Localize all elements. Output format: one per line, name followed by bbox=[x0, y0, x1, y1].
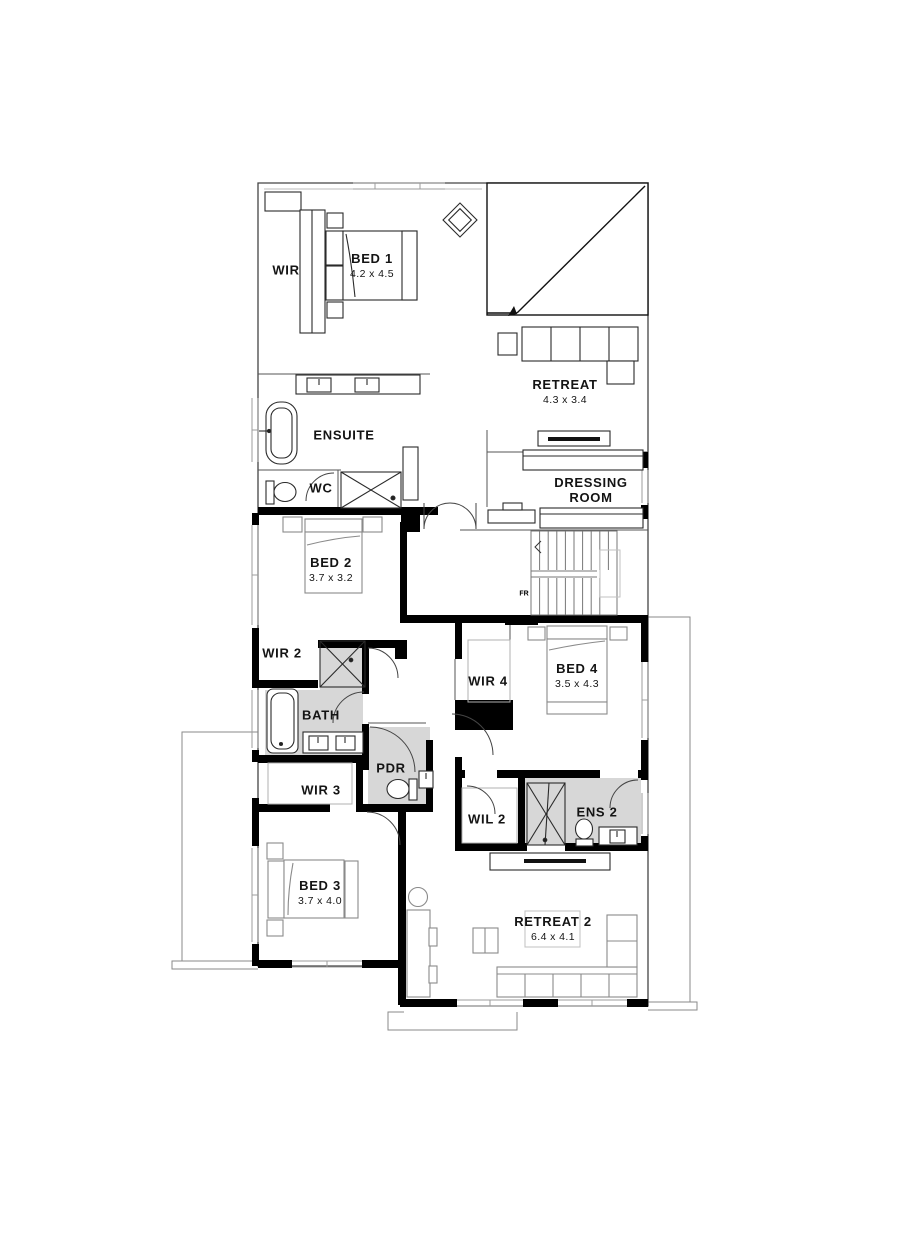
armchair bbox=[443, 203, 477, 237]
room-label-bed4: BED 43.5 x 4.3 bbox=[555, 662, 599, 690]
room-label-bath: BATH bbox=[302, 709, 340, 724]
void-area bbox=[487, 183, 648, 316]
room-label-wir3: WIR 3 bbox=[301, 784, 341, 799]
room-label-wir4: WIR 4 bbox=[468, 675, 508, 690]
room-label-wc: WC bbox=[309, 482, 332, 497]
room-label-ensuite: ENSUITE bbox=[313, 429, 374, 444]
wil2-door bbox=[467, 786, 495, 814]
room-label-wir: WIR bbox=[272, 264, 299, 279]
room-label-retreat: RETREAT4.3 x 3.4 bbox=[532, 378, 597, 406]
double-door-left bbox=[424, 503, 450, 529]
room-label-ens2: ENS 2 bbox=[576, 806, 617, 821]
room-label-bed2: BED 23.7 x 3.2 bbox=[309, 556, 353, 584]
room-label-dressing-room: DRESSINGROOM bbox=[554, 476, 628, 506]
bed3-door bbox=[367, 812, 400, 845]
room-label-retreat2: RETREAT 26.4 x 4.1 bbox=[514, 915, 592, 943]
room-label-pdr: PDR bbox=[376, 762, 406, 777]
room-label-wil2: WIL 2 bbox=[468, 813, 506, 828]
retreat-furniture bbox=[498, 327, 638, 384]
room-label-wir2: WIR 2 bbox=[262, 647, 302, 662]
room-label-bed3: BED 33.7 x 4.0 bbox=[298, 879, 342, 907]
double-door-right bbox=[450, 503, 476, 529]
bed2-door bbox=[368, 648, 398, 678]
stair-note: FR bbox=[519, 591, 528, 598]
room-label-bed1: BED 14.2 x 4.5 bbox=[350, 252, 394, 280]
staircase bbox=[531, 531, 620, 615]
floor-plan-drawing bbox=[0, 0, 901, 1246]
floor-plan: WIR BED 14.2 x 4.5 RETREAT4.3 x 3.4 ENSU… bbox=[0, 0, 901, 1246]
